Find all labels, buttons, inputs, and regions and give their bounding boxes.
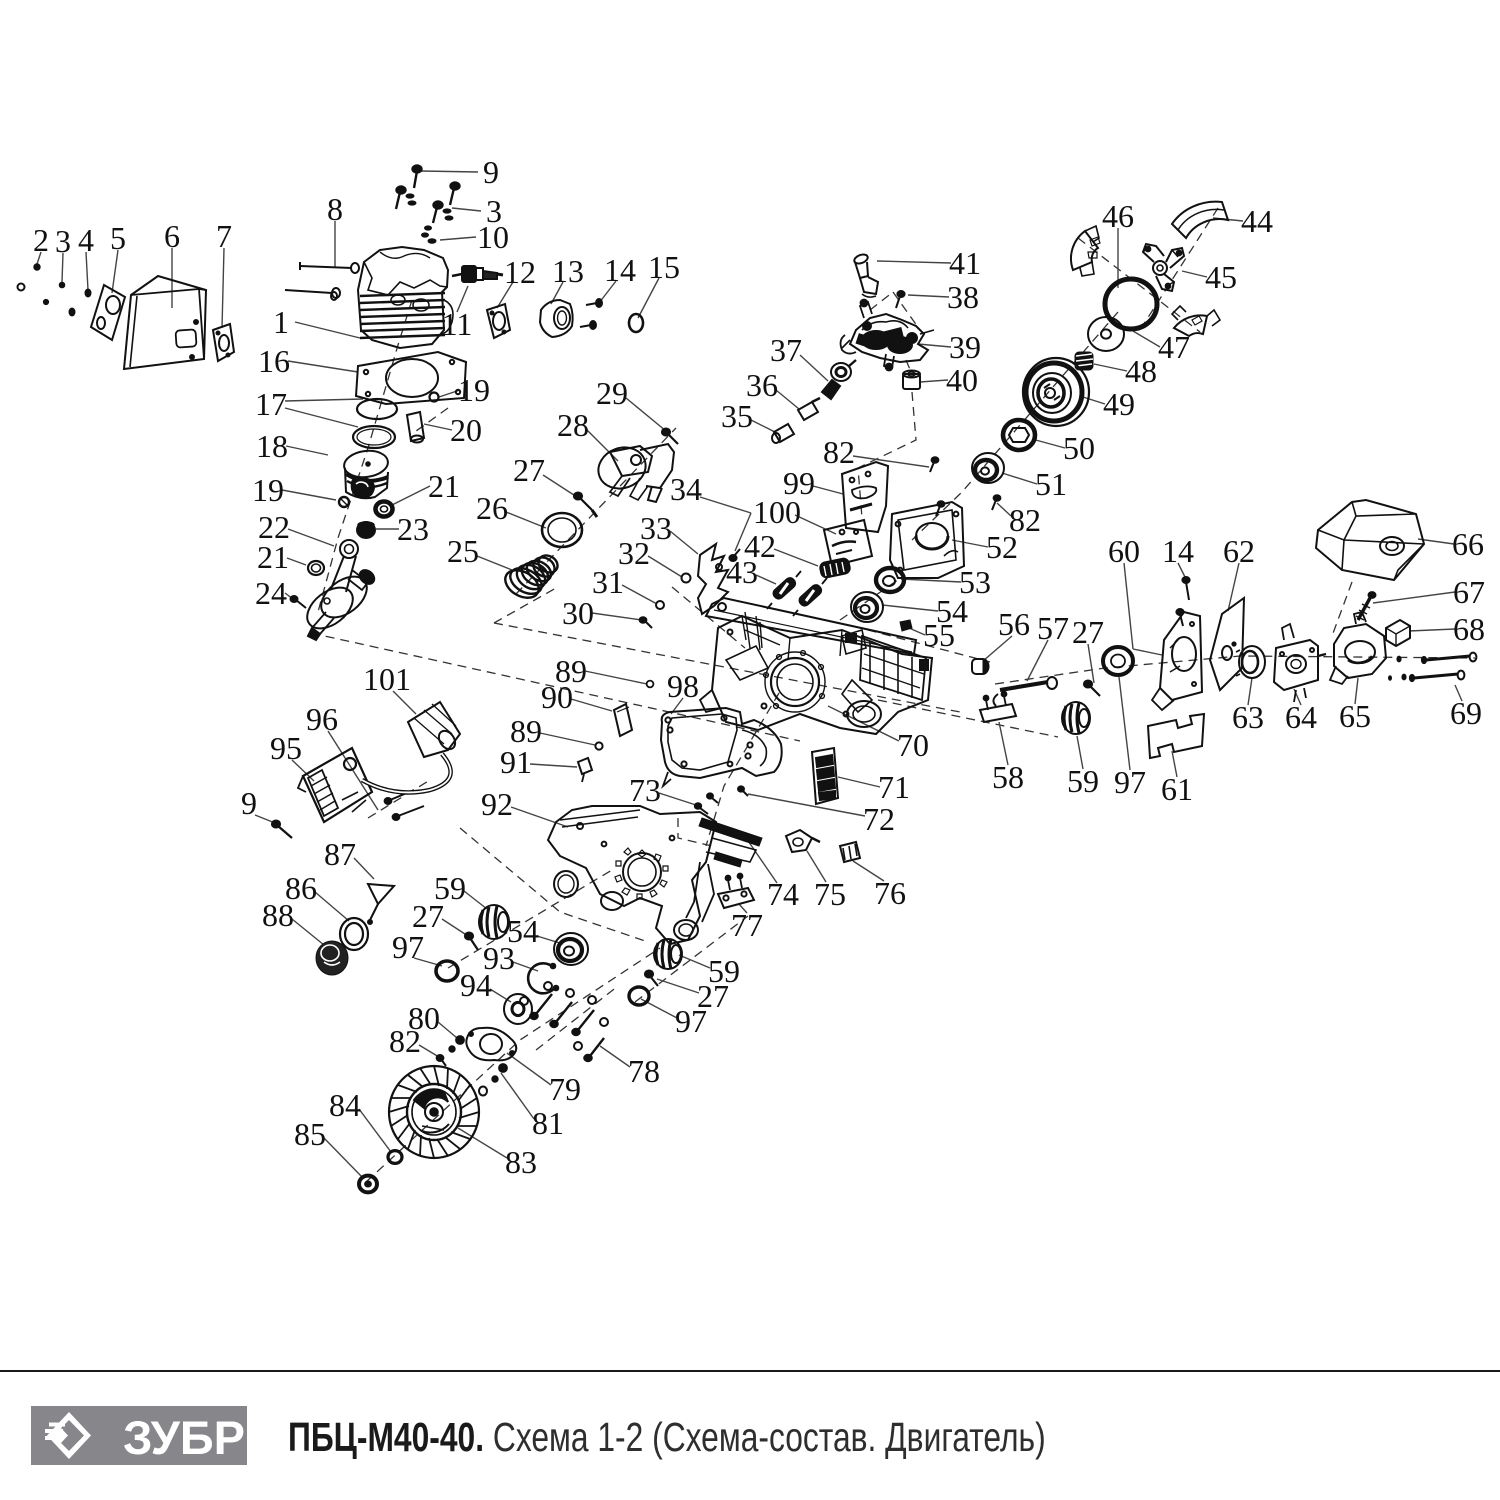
svg-text:33: 33 <box>640 510 672 546</box>
svg-text:66: 66 <box>1452 526 1484 562</box>
svg-text:97: 97 <box>1114 764 1146 800</box>
svg-text:69: 69 <box>1450 695 1482 731</box>
svg-text:7: 7 <box>216 218 232 254</box>
svg-text:95: 95 <box>270 730 302 766</box>
svg-text:2: 2 <box>33 222 49 258</box>
svg-text:97: 97 <box>675 1003 707 1039</box>
svg-text:36: 36 <box>746 367 778 403</box>
svg-text:59: 59 <box>1067 763 1099 799</box>
svg-text:27: 27 <box>513 452 545 488</box>
svg-text:4: 4 <box>78 222 94 258</box>
svg-text:6: 6 <box>164 218 180 254</box>
svg-text:3: 3 <box>55 223 71 259</box>
svg-text:82: 82 <box>823 434 855 470</box>
svg-text:71: 71 <box>878 769 910 805</box>
svg-text:61: 61 <box>1161 771 1193 807</box>
svg-text:19: 19 <box>458 372 490 408</box>
svg-text:21: 21 <box>257 539 289 575</box>
svg-text:17: 17 <box>255 386 287 422</box>
svg-text:85: 85 <box>294 1116 326 1152</box>
svg-text:45: 45 <box>1205 259 1237 295</box>
svg-text:62: 62 <box>1223 533 1255 569</box>
svg-text:34: 34 <box>670 471 702 507</box>
svg-text:77: 77 <box>731 907 763 943</box>
svg-text:91: 91 <box>500 744 532 780</box>
svg-text:84: 84 <box>329 1087 361 1123</box>
svg-text:83: 83 <box>505 1144 537 1180</box>
svg-text:46: 46 <box>1102 198 1134 234</box>
svg-text:30: 30 <box>562 595 594 631</box>
svg-text:73: 73 <box>629 772 661 808</box>
svg-text:14: 14 <box>604 252 636 288</box>
svg-text:14: 14 <box>1162 533 1194 569</box>
svg-text:18: 18 <box>256 428 288 464</box>
svg-text:98: 98 <box>667 668 699 704</box>
svg-text:25: 25 <box>447 533 479 569</box>
svg-text:47: 47 <box>1158 329 1190 365</box>
svg-text:5: 5 <box>110 220 126 256</box>
svg-text:88: 88 <box>262 897 294 933</box>
svg-text:13: 13 <box>552 253 584 289</box>
svg-text:48: 48 <box>1125 353 1157 389</box>
svg-text:9: 9 <box>241 785 257 821</box>
svg-text:101: 101 <box>363 661 411 697</box>
svg-text:90: 90 <box>541 679 573 715</box>
svg-text:51: 51 <box>1035 466 1067 502</box>
svg-text:58: 58 <box>992 759 1024 795</box>
svg-text:92: 92 <box>481 786 513 822</box>
svg-text:27: 27 <box>1072 614 1104 650</box>
svg-text:94: 94 <box>460 967 492 1003</box>
svg-text:15: 15 <box>648 249 680 285</box>
svg-text:49: 49 <box>1103 386 1135 422</box>
svg-text:96: 96 <box>306 701 338 737</box>
svg-text:35: 35 <box>721 398 753 434</box>
svg-text:60: 60 <box>1108 533 1140 569</box>
svg-text:75: 75 <box>814 876 846 912</box>
svg-text:55: 55 <box>923 617 955 653</box>
svg-text:43: 43 <box>726 554 758 590</box>
svg-text:24: 24 <box>255 575 287 611</box>
svg-text:37: 37 <box>770 332 802 368</box>
svg-text:59: 59 <box>708 953 740 989</box>
svg-text:40: 40 <box>946 362 978 398</box>
svg-text:39: 39 <box>949 329 981 365</box>
svg-text:56: 56 <box>998 606 1030 642</box>
svg-text:50: 50 <box>1063 430 1095 466</box>
svg-text:100: 100 <box>753 494 801 530</box>
svg-text:26: 26 <box>476 490 508 526</box>
svg-text:74: 74 <box>767 876 799 912</box>
svg-text:8: 8 <box>327 191 343 227</box>
svg-text:79: 79 <box>549 1071 581 1107</box>
svg-text:38: 38 <box>947 279 979 315</box>
svg-text:44: 44 <box>1241 203 1273 239</box>
svg-text:29: 29 <box>596 375 628 411</box>
svg-text:76: 76 <box>874 875 906 911</box>
svg-text:10: 10 <box>477 219 509 255</box>
svg-text:21: 21 <box>428 468 460 504</box>
svg-text:20: 20 <box>450 412 482 448</box>
svg-text:23: 23 <box>397 511 429 547</box>
svg-text:63: 63 <box>1232 699 1264 735</box>
svg-text:12: 12 <box>504 254 536 290</box>
svg-text:78: 78 <box>628 1053 660 1089</box>
svg-text:67: 67 <box>1453 574 1485 610</box>
svg-text:70: 70 <box>897 727 929 763</box>
svg-text:87: 87 <box>324 836 356 872</box>
svg-text:52: 52 <box>986 529 1018 565</box>
svg-text:65: 65 <box>1339 698 1371 734</box>
svg-text:57: 57 <box>1037 610 1069 646</box>
svg-text:9: 9 <box>483 154 499 190</box>
svg-text:41: 41 <box>949 245 981 281</box>
svg-text:68: 68 <box>1453 611 1485 647</box>
svg-text:28: 28 <box>557 407 589 443</box>
svg-text:19: 19 <box>252 472 284 508</box>
svg-text:82: 82 <box>389 1023 421 1059</box>
svg-text:1: 1 <box>273 304 289 340</box>
svg-text:11: 11 <box>442 306 473 342</box>
svg-text:72: 72 <box>863 801 895 837</box>
svg-text:59: 59 <box>434 870 466 906</box>
svg-text:81: 81 <box>532 1105 564 1141</box>
svg-text:64: 64 <box>1285 699 1317 735</box>
svg-text:16: 16 <box>258 343 290 379</box>
svg-text:97: 97 <box>392 929 424 965</box>
